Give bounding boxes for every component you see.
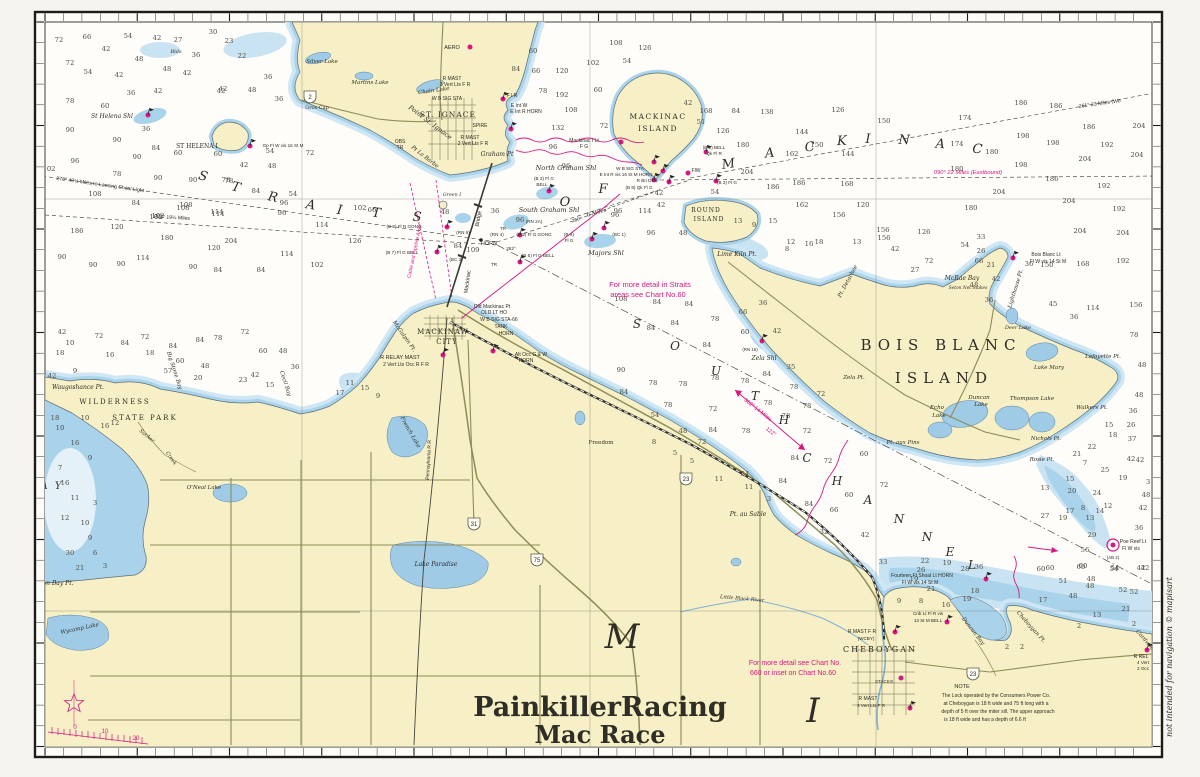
map-label: Echo bbox=[929, 405, 945, 411]
map-label: CITY bbox=[436, 338, 457, 346]
depth-sounding: 114 bbox=[316, 221, 329, 229]
depth-sounding: 96 bbox=[71, 157, 80, 165]
depth-sounding: 156 bbox=[833, 211, 846, 219]
depth-sounding: 27 bbox=[1041, 512, 1050, 520]
depth-sounding: 2 bbox=[1005, 643, 1009, 651]
depth-sounding: 48 bbox=[1142, 491, 1151, 499]
depth-sounding: 36 bbox=[291, 363, 300, 371]
depth-sounding: 11 bbox=[745, 483, 754, 491]
depth-sounding: 11 bbox=[715, 475, 724, 483]
map-label: Waugoshance Pt. bbox=[52, 384, 104, 391]
depth-sounding: 35 bbox=[787, 363, 796, 371]
map-label: is 18 ft wide and has a depth of 6.6 ft bbox=[944, 717, 1026, 723]
depth-sounding: 84 bbox=[653, 298, 662, 306]
place-wilderness-state-park: WILDERNESS bbox=[79, 398, 150, 406]
depth-sounding: 54 bbox=[1110, 565, 1119, 573]
depth-sounding: 54 bbox=[741, 470, 750, 478]
depth-sounding: 66 bbox=[739, 308, 748, 316]
map-label: TR bbox=[397, 145, 404, 151]
depth-sounding: 26 bbox=[1127, 421, 1136, 429]
depth-sounding: 72 bbox=[817, 390, 826, 398]
depth-sounding: 16 bbox=[106, 351, 115, 359]
depth-sounding: 84 bbox=[454, 242, 463, 250]
map-label: FlW bbox=[692, 168, 701, 174]
depth-sounding: 29 bbox=[1088, 531, 1097, 539]
map-label: 4 Vert bbox=[1137, 660, 1150, 665]
depth-sounding: 16 bbox=[101, 422, 110, 430]
depth-sounding: 54 bbox=[623, 57, 632, 65]
depth-sounding: 114 bbox=[639, 207, 652, 215]
depth-sounding: 54 bbox=[961, 241, 970, 249]
map-label: HORN bbox=[481, 241, 497, 247]
map-label: (B 2) BELL bbox=[703, 145, 726, 150]
depth-sounding: 90 bbox=[58, 253, 67, 261]
depth-sounding: 120 bbox=[556, 67, 569, 75]
depth-sounding: 21 bbox=[987, 261, 996, 269]
depth-sounding: 114 bbox=[137, 254, 150, 262]
depth-sounding: 192 bbox=[1117, 257, 1130, 265]
depth-sounding: 144 bbox=[796, 128, 809, 136]
depth-sounding: 84 bbox=[257, 266, 266, 274]
map-label: Fl W vis 14 St M bbox=[902, 580, 938, 586]
map-label: N bbox=[897, 133, 911, 148]
depth-sounding: 150 bbox=[878, 117, 891, 125]
map-label: W B SIG STA bbox=[616, 166, 645, 171]
depth-sounding: 78 bbox=[742, 427, 751, 435]
depth-sounding: 72 bbox=[241, 328, 250, 336]
depth-sounding: 66 bbox=[975, 257, 984, 265]
depth-sounding: 48 bbox=[1087, 575, 1096, 583]
depth-sounding: 114 bbox=[212, 210, 225, 218]
depth-sounding: 120 bbox=[208, 244, 221, 252]
depth-sounding: 8 bbox=[919, 597, 923, 605]
depth-sounding: 84 bbox=[121, 339, 130, 347]
depth-sounding: 54 bbox=[124, 32, 133, 40]
depth-sounding: 36 bbox=[264, 73, 273, 81]
map-label: Poe Reef Lt bbox=[1120, 539, 1147, 545]
map-label: F l R bbox=[507, 93, 518, 99]
depth-sounding: 5 bbox=[673, 449, 677, 457]
map-label: T bbox=[751, 389, 760, 403]
map-label: Fl G bbox=[565, 238, 574, 243]
depth-sounding: 23 bbox=[225, 37, 234, 45]
depth-sounding: 90 bbox=[113, 136, 122, 144]
map-label: O bbox=[560, 195, 571, 210]
map-label: (AB 2) bbox=[1107, 555, 1120, 560]
map-label: Zela Shl bbox=[750, 355, 776, 362]
depth-sounding: 66 bbox=[532, 67, 541, 75]
map-label: Seton Net Stakes bbox=[949, 286, 988, 291]
depth-sounding: 90 bbox=[154, 174, 163, 182]
depth-sounding: 36 bbox=[1070, 313, 1079, 321]
depth-sounding: 10 bbox=[81, 414, 90, 422]
depth-sounding: 15 bbox=[266, 381, 275, 389]
depth-sounding: 42 bbox=[115, 71, 124, 79]
depth-sounding: 5 bbox=[690, 457, 694, 465]
depth-sounding: 48 bbox=[279, 347, 288, 355]
map-label: H bbox=[831, 474, 843, 488]
depth-sounding: 42 bbox=[251, 371, 260, 379]
buoy-light-icon bbox=[686, 171, 691, 176]
map-label: C bbox=[972, 142, 984, 158]
map-label: Duncan bbox=[967, 395, 990, 401]
depth-sounding: 78 bbox=[1130, 331, 1139, 339]
place-mackinaw-city: MACKINAW bbox=[417, 328, 469, 336]
depth-sounding: 180 bbox=[161, 234, 174, 242]
depth-sounding: 36 bbox=[192, 51, 201, 59]
map-label: (RN 2A) bbox=[526, 219, 543, 224]
depth-sounding: 78 bbox=[539, 87, 548, 95]
map-label: Rosie Pt. bbox=[1029, 457, 1055, 463]
depth-sounding: 19 bbox=[963, 595, 972, 603]
map-label: (B 2) Fl G GONG bbox=[516, 232, 552, 237]
state-letter-i: I bbox=[805, 691, 820, 731]
place-mackinac-island: MACKINAC bbox=[629, 112, 686, 121]
route-shield-number: 75 bbox=[534, 558, 541, 564]
map-label: I bbox=[864, 132, 871, 147]
map-label: Fl W vis 14 St M bbox=[1030, 259, 1066, 265]
depth-sounding: 60 bbox=[1046, 564, 1055, 572]
depth-sounding: 96 bbox=[278, 209, 287, 217]
map-label: 252° bbox=[506, 246, 516, 251]
map-label: Gros Cap bbox=[305, 105, 329, 111]
depth-sounding: 54 bbox=[266, 147, 275, 155]
route-shield: 75 bbox=[531, 554, 543, 566]
depth-sounding: 9 bbox=[73, 367, 77, 375]
depth-sounding: 54 bbox=[711, 188, 720, 196]
depth-sounding: 42 bbox=[891, 245, 900, 253]
depth-sounding: 102 bbox=[311, 261, 324, 269]
depth-sounding: 21 bbox=[76, 564, 85, 572]
depth-sounding: 60 bbox=[594, 86, 603, 94]
map-label: 3 Vert Lts F R bbox=[857, 703, 886, 708]
depth-sounding: 10 bbox=[56, 424, 65, 432]
depth-sounding: 192 bbox=[1101, 141, 1114, 149]
depth-sounding: 32 bbox=[820, 528, 829, 536]
depth-sounding: 56 bbox=[1081, 546, 1090, 554]
depth-sounding: 42 bbox=[1127, 455, 1136, 463]
depth-sounding: 84 bbox=[791, 454, 800, 462]
depth-sounding: 51 bbox=[697, 118, 706, 126]
depth-sounding: 25 bbox=[1101, 466, 1110, 474]
depth-sounding: 2 bbox=[1132, 620, 1136, 628]
place-cheboygan: CHEBOYGAN bbox=[843, 645, 917, 654]
depth-sounding: 198 bbox=[1017, 132, 1030, 140]
scale-number: 20 bbox=[133, 736, 140, 742]
route-shield-number: 23 bbox=[683, 477, 690, 483]
map-label: HORN bbox=[519, 358, 534, 364]
map-label: on Bay Pt. bbox=[42, 580, 73, 587]
place-bois-blanc-island: BOIS BLANC bbox=[861, 336, 1022, 354]
map-label: OLD LT HO bbox=[481, 310, 507, 316]
depth-sounding: 78 bbox=[764, 399, 773, 407]
depth-sounding: 17 bbox=[1039, 596, 1048, 604]
depth-sounding: 204 bbox=[1074, 227, 1087, 235]
depth-sounding: 84 bbox=[169, 342, 178, 350]
depth-sounding: 10 bbox=[66, 339, 75, 347]
depth-sounding: 52 bbox=[1130, 588, 1139, 596]
depth-sounding: 204 bbox=[1117, 229, 1130, 237]
map-label: R RELAY MAST bbox=[380, 355, 420, 361]
depth-sounding: 42 bbox=[183, 69, 192, 77]
watermark-text: not intended for navigation © mapisart bbox=[1165, 576, 1174, 737]
depth-sounding: 15 bbox=[1105, 421, 1114, 429]
depth-sounding: 72 bbox=[824, 457, 833, 465]
depth-sounding: 9 bbox=[88, 534, 92, 542]
depth-sounding: 26 bbox=[977, 247, 986, 255]
depth-sounding: 36 bbox=[985, 296, 994, 304]
depth-sounding: 180 bbox=[737, 141, 750, 149]
depth-sounding: 84 bbox=[512, 65, 521, 73]
depth-sounding: 186 bbox=[1050, 102, 1063, 110]
depth-sounding: 2 bbox=[1077, 622, 1081, 630]
depth-sounding: 156 bbox=[1130, 301, 1143, 309]
depth-sounding: 60 bbox=[529, 47, 538, 55]
depth-sounding: 3 bbox=[1146, 478, 1150, 486]
chart-title-line2: Mac Race bbox=[534, 720, 665, 749]
map-label: W B SIG STA-66 bbox=[480, 317, 518, 323]
depth-sounding: 3 bbox=[93, 499, 97, 507]
depth-sounding: 120 bbox=[857, 201, 870, 209]
nautical-chart: 231752323 726654424227302322364848424242… bbox=[0, 0, 1200, 777]
depth-sounding: 10 bbox=[81, 519, 90, 527]
depth-sounding: 3 bbox=[103, 562, 107, 570]
depth-sounding: 48 bbox=[268, 162, 277, 170]
map-label: McRae Bay bbox=[944, 275, 980, 282]
depth-sounding: 42 bbox=[1139, 504, 1148, 512]
depth-sounding: 78 bbox=[803, 402, 812, 410]
depth-sounding: 168 bbox=[700, 107, 713, 115]
depth-sounding: 54 bbox=[651, 411, 660, 419]
map-label: SPIRE bbox=[472, 123, 488, 129]
depth-sounding: 78 bbox=[649, 379, 658, 387]
buoy-light-icon bbox=[468, 45, 473, 50]
depth-sounding: 14 bbox=[1096, 507, 1105, 515]
map-label: (B 8) Qk Fl G bbox=[625, 185, 652, 190]
map-label: Lake bbox=[973, 402, 988, 408]
depth-sounding: 90 bbox=[117, 260, 126, 268]
depth-sounding: 9 bbox=[752, 221, 756, 229]
depth-sounding: 36 bbox=[127, 89, 136, 97]
route-shield: 31 bbox=[468, 518, 480, 530]
depth-sounding: 78 bbox=[790, 383, 799, 391]
depth-sounding: 21 bbox=[927, 585, 936, 593]
map-label: St Helena Shl bbox=[91, 113, 133, 120]
map-label: Lake Mary bbox=[1033, 365, 1065, 371]
depth-sounding: 90 bbox=[89, 261, 98, 269]
map-label: Lafayette Pt. bbox=[1084, 354, 1121, 360]
map-label: L bbox=[967, 558, 976, 572]
depth-sounding: 60 bbox=[1077, 563, 1086, 571]
depth-sounding: 13 bbox=[1086, 514, 1095, 522]
map-label: C bbox=[802, 451, 811, 465]
depth-sounding: 78 bbox=[664, 401, 673, 409]
map-label: Fl W vis bbox=[1122, 546, 1140, 552]
depth-sounding: 60 bbox=[860, 450, 869, 458]
map-label: Pt. aux Pins bbox=[886, 440, 920, 446]
depth-sounding: 42 bbox=[217, 87, 226, 95]
depth-sounding: 18 bbox=[971, 587, 980, 595]
map-label: (RN 16) bbox=[742, 347, 758, 352]
depth-sounding: 90 bbox=[617, 366, 626, 374]
depth-sounding: 180 bbox=[965, 204, 978, 212]
depth-sounding: 78 bbox=[66, 97, 75, 105]
map-label: Lake Paradise bbox=[414, 561, 458, 568]
map-label: 2 Occ bbox=[1137, 666, 1150, 671]
map-label: ISLAND bbox=[638, 124, 678, 133]
depth-sounding: 30 bbox=[209, 28, 218, 36]
depth-sounding: 204 bbox=[741, 168, 754, 176]
depth-sounding: 36 bbox=[1135, 524, 1144, 532]
map-label: M bbox=[720, 156, 737, 173]
depth-sounding: 84 bbox=[214, 266, 223, 274]
depth-sounding: 7 bbox=[58, 464, 62, 472]
depth-sounding: 8 bbox=[785, 245, 789, 253]
map-label: STATE PARK bbox=[112, 414, 177, 422]
depth-sounding: 48 bbox=[679, 427, 688, 435]
depth-sounding: 42 bbox=[153, 34, 162, 42]
map-label: at Cheboygan is 18 ft wide and 75 ft lon… bbox=[943, 701, 1048, 707]
map-label: (WCBY) bbox=[858, 636, 875, 641]
map-label: (B 3) Fl G bbox=[717, 180, 737, 185]
depth-sounding: 48 bbox=[201, 362, 210, 370]
map-label: A bbox=[934, 137, 945, 153]
map-label: Blds bbox=[169, 49, 181, 55]
depth-sounding: 20 bbox=[1068, 487, 1077, 495]
depth-sounding: 24 bbox=[1093, 489, 1102, 497]
route-shield: 23 bbox=[967, 668, 979, 680]
depth-sounding: 90 bbox=[189, 176, 198, 184]
depth-sounding: 13 bbox=[734, 217, 743, 225]
note-detail-straits: For more detail in Straits bbox=[609, 280, 691, 289]
depth-sounding: 192 bbox=[556, 91, 569, 99]
depth-sounding: 42 bbox=[1136, 456, 1145, 464]
map-label: (RN 4) bbox=[490, 232, 504, 237]
depth-sounding: 42 bbox=[773, 327, 782, 335]
depth-sounding: 22 bbox=[1088, 443, 1097, 451]
depth-sounding: 48 bbox=[248, 86, 257, 94]
map-label: Graham Pt bbox=[481, 151, 514, 158]
depth-sounding: 186 bbox=[1083, 123, 1096, 131]
depth-sounding: 19 bbox=[943, 559, 952, 567]
depth-sounding: 13 bbox=[853, 238, 862, 246]
depth-sounding: 9 bbox=[88, 454, 92, 462]
depth-sounding: 90 bbox=[189, 263, 198, 271]
depth-sounding: 120 bbox=[111, 223, 124, 231]
depth-sounding: 204 bbox=[1133, 122, 1146, 130]
depth-sounding: 60 bbox=[259, 347, 268, 355]
map-label: O bbox=[670, 339, 680, 353]
depth-sounding: 168 bbox=[841, 180, 854, 188]
depth-sounding: 11 bbox=[346, 379, 355, 387]
depth-sounding: 15 bbox=[361, 384, 370, 392]
depth-sounding: 17 bbox=[336, 389, 345, 397]
depth-sounding: 180 bbox=[986, 148, 999, 156]
depth-sounding: 45 bbox=[1049, 300, 1058, 308]
map-label: Green I bbox=[443, 192, 461, 198]
depth-sounding: 168 bbox=[1077, 260, 1090, 268]
chart-title-line1: PainkillerRacing bbox=[473, 692, 727, 723]
depth-sounding: 42 bbox=[1137, 564, 1146, 572]
depth-sounding: 11 bbox=[71, 494, 80, 502]
map-label: ROUND bbox=[691, 207, 721, 214]
map-label: Lake bbox=[931, 413, 946, 419]
depth-sounding: 66 bbox=[830, 506, 839, 514]
depth-sounding: 72 bbox=[66, 59, 75, 67]
map-label: W B SIG STA bbox=[432, 96, 463, 102]
depth-sounding: 42 bbox=[657, 201, 666, 209]
depth-sounding: 18 bbox=[56, 349, 65, 357]
depth-sounding: 84 bbox=[620, 388, 629, 396]
depth-sounding: 204 bbox=[993, 188, 1006, 196]
depth-sounding: 84 bbox=[805, 500, 814, 508]
depth-sounding: 72 bbox=[880, 481, 889, 489]
map-label: Zela Pt. bbox=[842, 375, 865, 381]
map-label: 090° 22 Miles (Eastbound) bbox=[934, 170, 1002, 176]
map-label: R MAST F R bbox=[848, 629, 877, 635]
route-shield: 23 bbox=[680, 473, 692, 485]
depth-sounding: 72 bbox=[600, 122, 609, 130]
depth-sounding: 60 bbox=[101, 102, 110, 110]
depth-sounding: 60 bbox=[214, 150, 223, 158]
map-label: K bbox=[836, 134, 849, 149]
map-label: E Int R vis 16 St M HORN bbox=[600, 172, 653, 177]
depth-sounding: 8 bbox=[652, 438, 656, 446]
map-label: Majors Shl bbox=[587, 249, 624, 257]
map-label: (BC 1) bbox=[612, 232, 626, 237]
depth-sounding: 126 bbox=[349, 237, 362, 245]
depth-sounding: 186 bbox=[1015, 99, 1028, 107]
depth-sounding: 30 bbox=[66, 549, 75, 557]
map-label: R MAST bbox=[859, 696, 878, 702]
depth-sounding: 48 bbox=[135, 55, 144, 63]
depth-sounding: 33 bbox=[977, 233, 986, 241]
depth-sounding: 204 bbox=[1063, 197, 1076, 205]
map-label: O'Neal Lake bbox=[187, 485, 222, 491]
depth-sounding: 42 bbox=[240, 161, 249, 169]
map-label: Freedom bbox=[588, 440, 614, 446]
depth-sounding: 90 bbox=[133, 153, 142, 161]
depth-sounding: 23 bbox=[239, 376, 248, 384]
map-label: Lime Kiln Pt. bbox=[716, 251, 757, 258]
depth-sounding: 27 bbox=[911, 266, 920, 274]
map-label: Gp Fl W vis 16 St M bbox=[263, 143, 304, 148]
depth-sounding: 18 bbox=[815, 238, 824, 246]
map-label: C bbox=[804, 140, 815, 156]
depth-sounding: 114 bbox=[281, 250, 294, 258]
depth-sounding: 54 bbox=[289, 190, 298, 198]
map-label: ISLAND bbox=[895, 369, 993, 387]
map-label: (RN 6) bbox=[456, 230, 470, 235]
depth-sounding: 198 bbox=[1047, 139, 1060, 147]
map-label: 660 or inset on Chart No.60 bbox=[750, 670, 836, 677]
depth-sounding: 19 bbox=[1059, 514, 1068, 522]
map-label: TANK bbox=[495, 324, 509, 330]
map-label: NOTE bbox=[954, 684, 970, 690]
map-label: (B 5) Fl G BELL bbox=[522, 253, 555, 258]
depth-sounding: 96 bbox=[280, 199, 289, 207]
depth-sounding: 7 bbox=[1083, 459, 1087, 467]
depth-sounding: 96 bbox=[549, 143, 558, 151]
depth-sounding: 9 bbox=[376, 392, 380, 400]
depth-sounding: 144 bbox=[842, 150, 855, 158]
map-label: U bbox=[711, 364, 722, 378]
depth-sounding: 3 bbox=[767, 495, 771, 503]
depth-sounding: 78 bbox=[679, 380, 688, 388]
depth-sounding: 60 bbox=[174, 149, 183, 157]
depth-sounding: 186 bbox=[793, 179, 806, 187]
depth-sounding: 102 bbox=[354, 204, 367, 212]
